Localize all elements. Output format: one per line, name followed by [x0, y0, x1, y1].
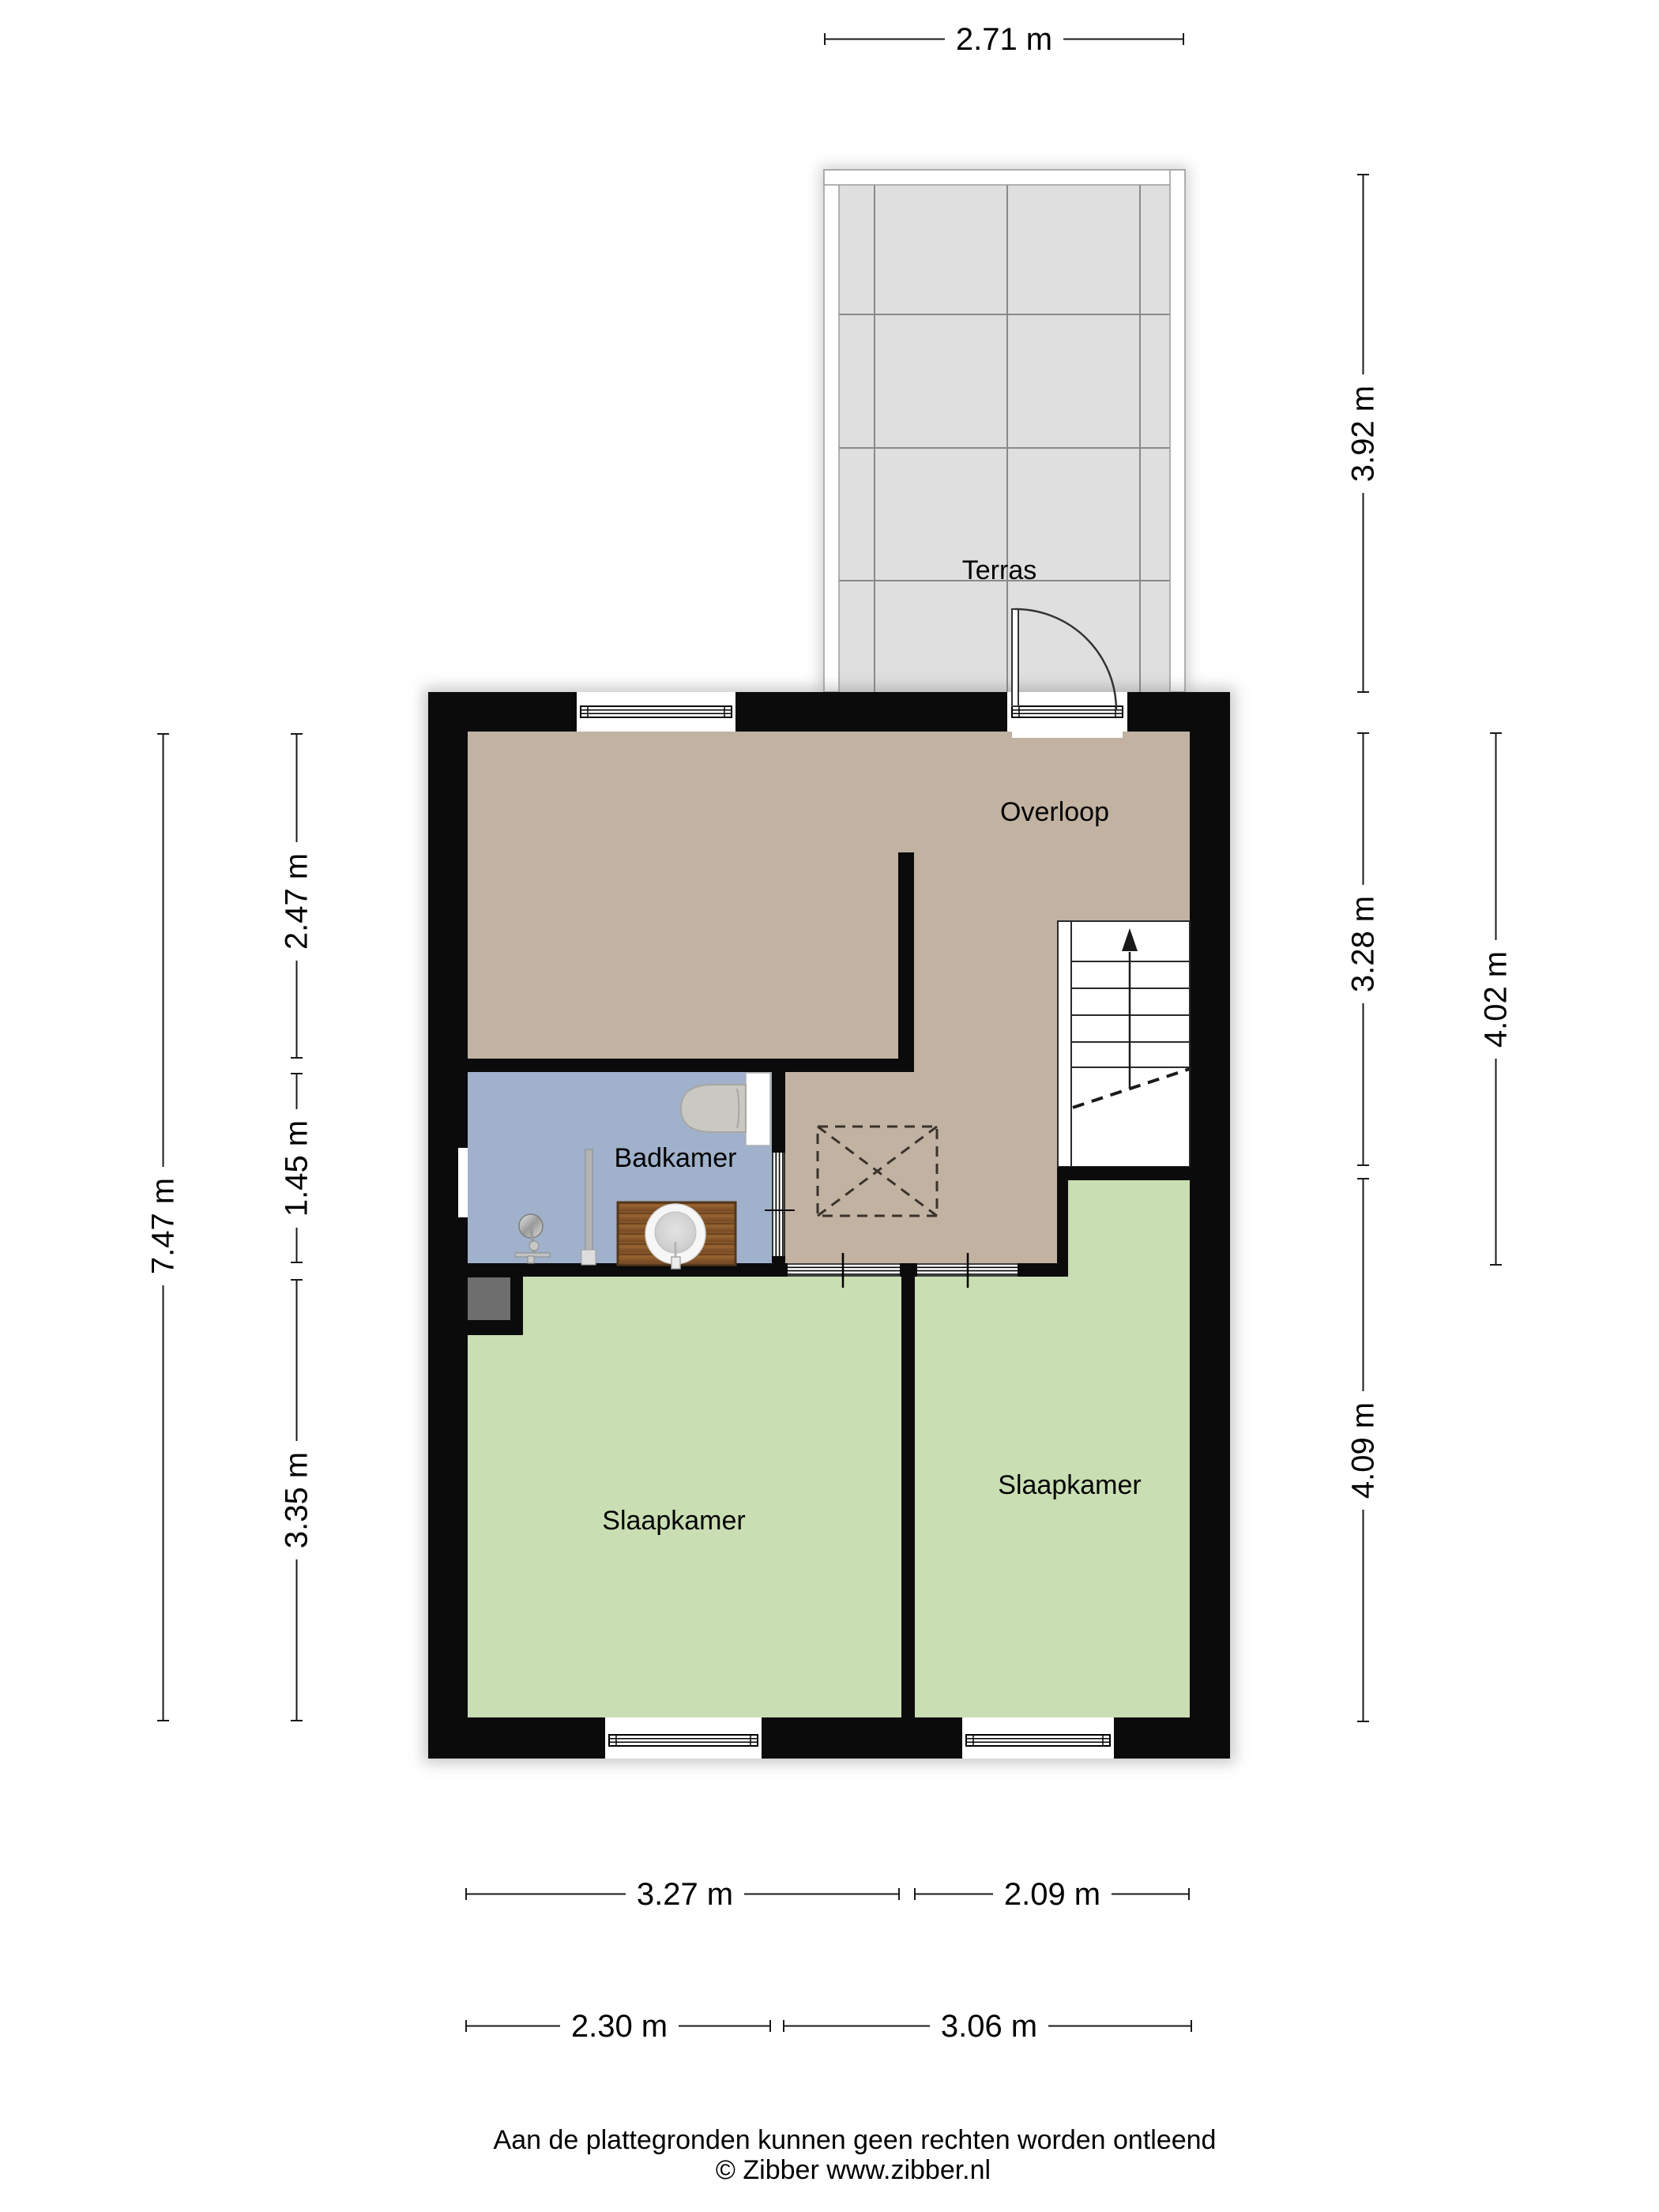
svg-text:3.28 m: 3.28 m [1346, 896, 1381, 992]
svg-text:1.45 m: 1.45 m [280, 1120, 314, 1217]
svg-text:4.02 m: 4.02 m [1479, 951, 1514, 1048]
svg-text:2.47 m: 2.47 m [280, 853, 314, 950]
svg-text:3.06 m: 3.06 m [941, 2009, 1037, 2044]
svg-text:Aan de plattegronden kunnen ge: Aan de plattegronden kunnen geen rechten… [494, 2125, 1217, 2155]
svg-text:3.35 m: 3.35 m [280, 1452, 314, 1548]
svg-text:4.09 m: 4.09 m [1346, 1402, 1381, 1499]
svg-text:Terras: Terras [962, 555, 1036, 585]
svg-text:Slaapkamer: Slaapkamer [998, 1470, 1141, 1500]
svg-text:2.71 m: 2.71 m [956, 22, 1052, 57]
svg-text:Slaapkamer: Slaapkamer [602, 1506, 745, 1536]
svg-text:7.47 m: 7.47 m [146, 1178, 181, 1274]
svg-text:2.30 m: 2.30 m [571, 2009, 668, 2044]
svg-text:2.09 m: 2.09 m [1004, 1877, 1100, 1912]
svg-text:Overloop: Overloop [1000, 797, 1109, 827]
svg-text:3.27 m: 3.27 m [637, 1877, 733, 1912]
svg-text:Badkamer: Badkamer [615, 1143, 737, 1173]
svg-text:© Zibber www.zibber.nl: © Zibber www.zibber.nl [716, 2155, 991, 2185]
svg-text:3.92 m: 3.92 m [1346, 386, 1381, 482]
